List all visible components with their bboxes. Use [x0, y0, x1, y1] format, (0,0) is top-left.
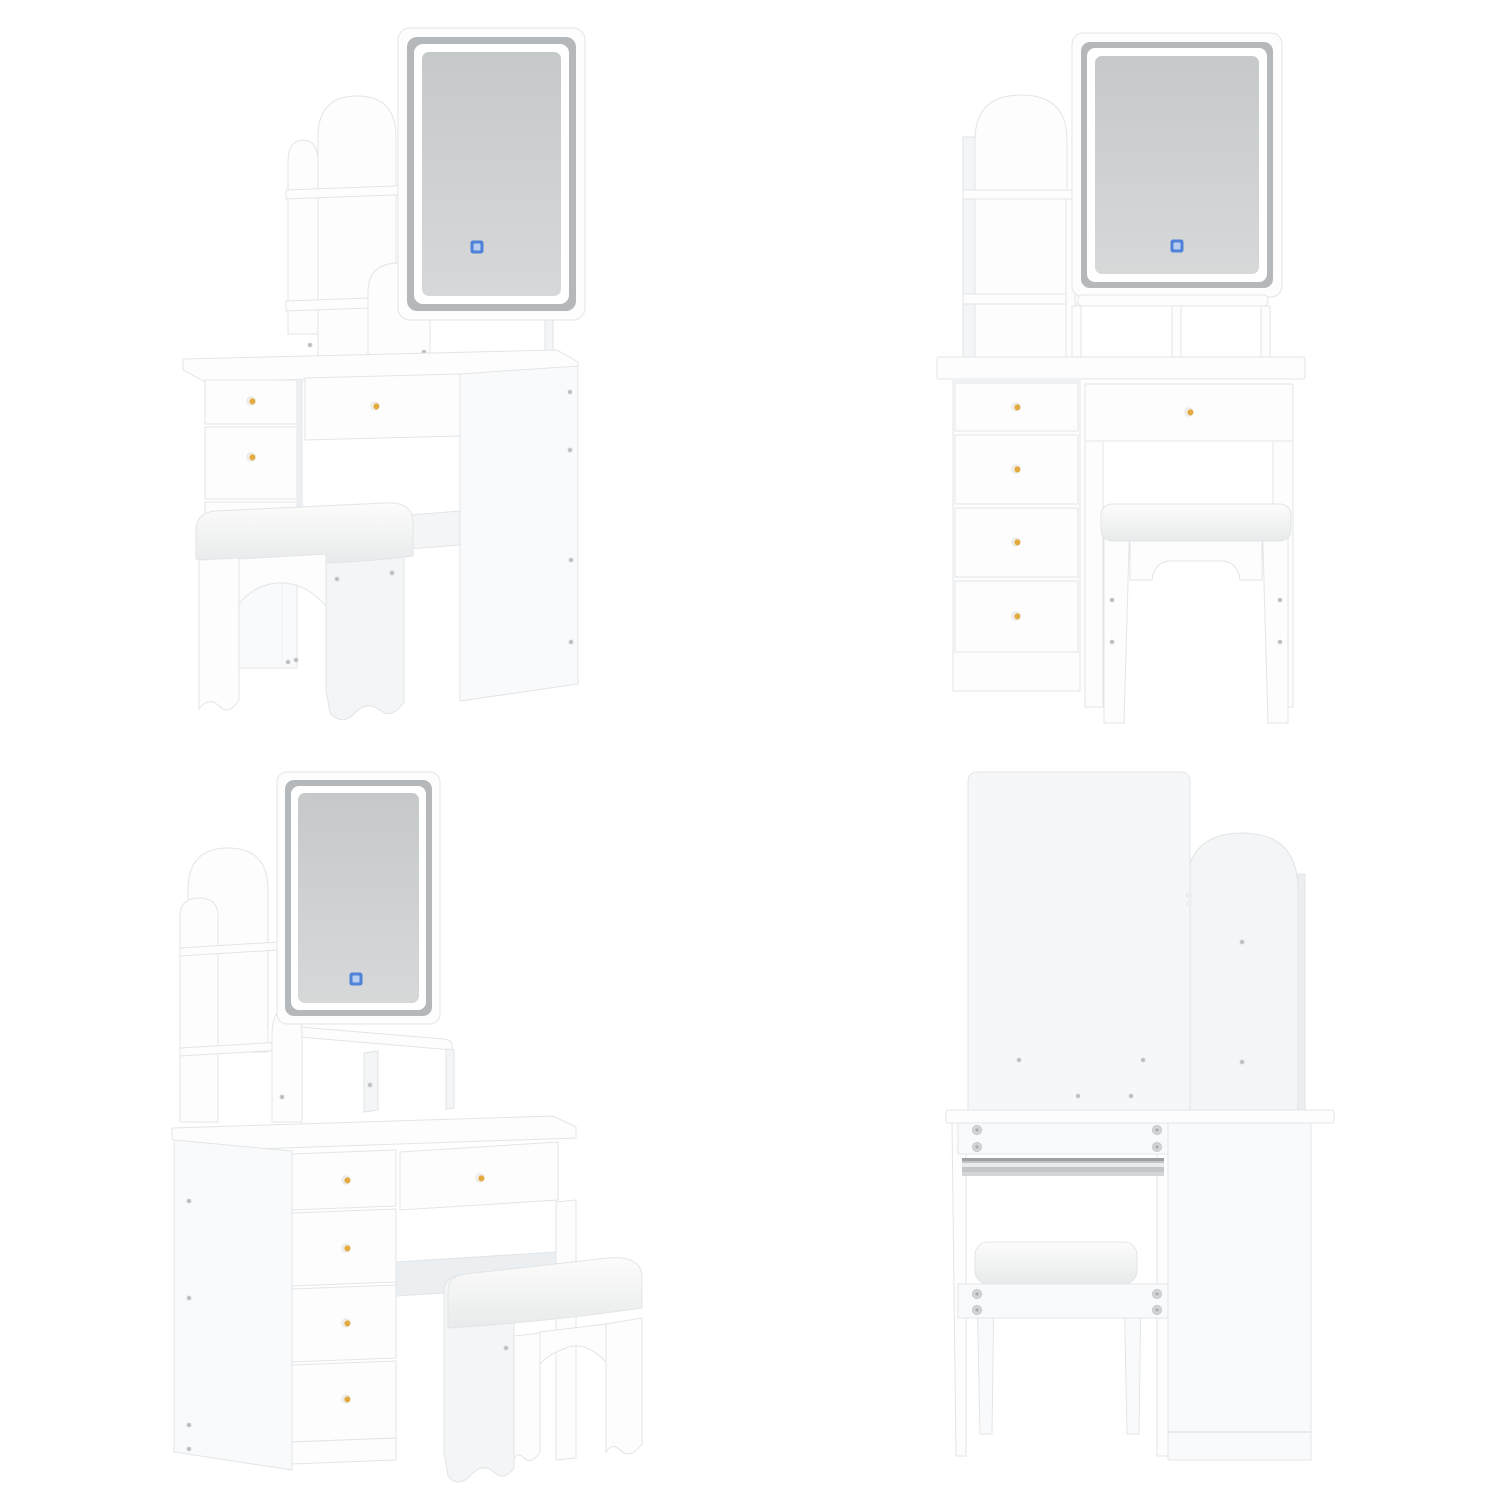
- drawer-slide-rail-shadow: [962, 1172, 1164, 1176]
- stool-leg: [199, 558, 239, 710]
- mirror-glass: [422, 52, 561, 296]
- stool-cushion: [196, 503, 413, 564]
- stool-leg: [514, 1333, 540, 1461]
- hutch-cubby-wall: [1072, 306, 1081, 358]
- stool-leg: [1104, 512, 1130, 723]
- hutch-cubby-wall: [364, 1051, 378, 1112]
- center-drawer: [305, 374, 460, 440]
- stool-leg: [606, 1318, 642, 1454]
- lower-stretcher-rail: [958, 1284, 1168, 1318]
- drawer-slide-rail-line: [962, 1158, 1164, 1161]
- back-panel: [968, 772, 1190, 1128]
- cabinet-edge: [297, 379, 303, 522]
- hutch-cubby-wall: [1172, 306, 1181, 358]
- desk-side-panel: [174, 1140, 292, 1470]
- view-back: [946, 772, 1334, 1460]
- hutch-cubby-wall: [446, 1049, 454, 1109]
- view-angled-right: [183, 28, 585, 720]
- hutch-long-shelf: [300, 1027, 452, 1050]
- drawer-cabinet-back: [1168, 1123, 1311, 1460]
- back-apron-rail: [958, 1123, 1168, 1154]
- panel-seam-tab: [1186, 901, 1192, 906]
- desk-top: [946, 1110, 1334, 1123]
- hutch-cubby-wall: [1261, 306, 1270, 358]
- hutch-arched-divider: [272, 1008, 302, 1122]
- mirror-support-shelf: [1078, 295, 1268, 306]
- vanity-four-view-render: [0, 0, 1500, 1500]
- desk-leg: [1085, 441, 1103, 707]
- hutch-shelf: [963, 190, 1073, 199]
- drawer: [205, 427, 297, 499]
- product-image-grid: [0, 0, 1500, 1500]
- stool-apron: [1130, 536, 1262, 580]
- hutch-side-arch-panel: [180, 898, 218, 1122]
- stool-cushion: [1101, 504, 1291, 541]
- stool-cushion: [975, 1242, 1137, 1284]
- drawer-slide-rail-highlight: [962, 1163, 1164, 1167]
- panel-seam-tab: [1186, 893, 1192, 898]
- desk-side-panel: [460, 366, 578, 701]
- hutch-shelf: [963, 294, 1079, 304]
- view-front: [937, 33, 1305, 723]
- hutch-back-wall: [963, 137, 975, 359]
- mirror-glass: [298, 793, 419, 1003]
- view-angled-left: [172, 772, 642, 1482]
- desk-top: [937, 357, 1305, 379]
- stool-leg: [1262, 512, 1288, 723]
- cabinet-base: [292, 1438, 396, 1464]
- hutch-arch-panel: [975, 95, 1067, 358]
